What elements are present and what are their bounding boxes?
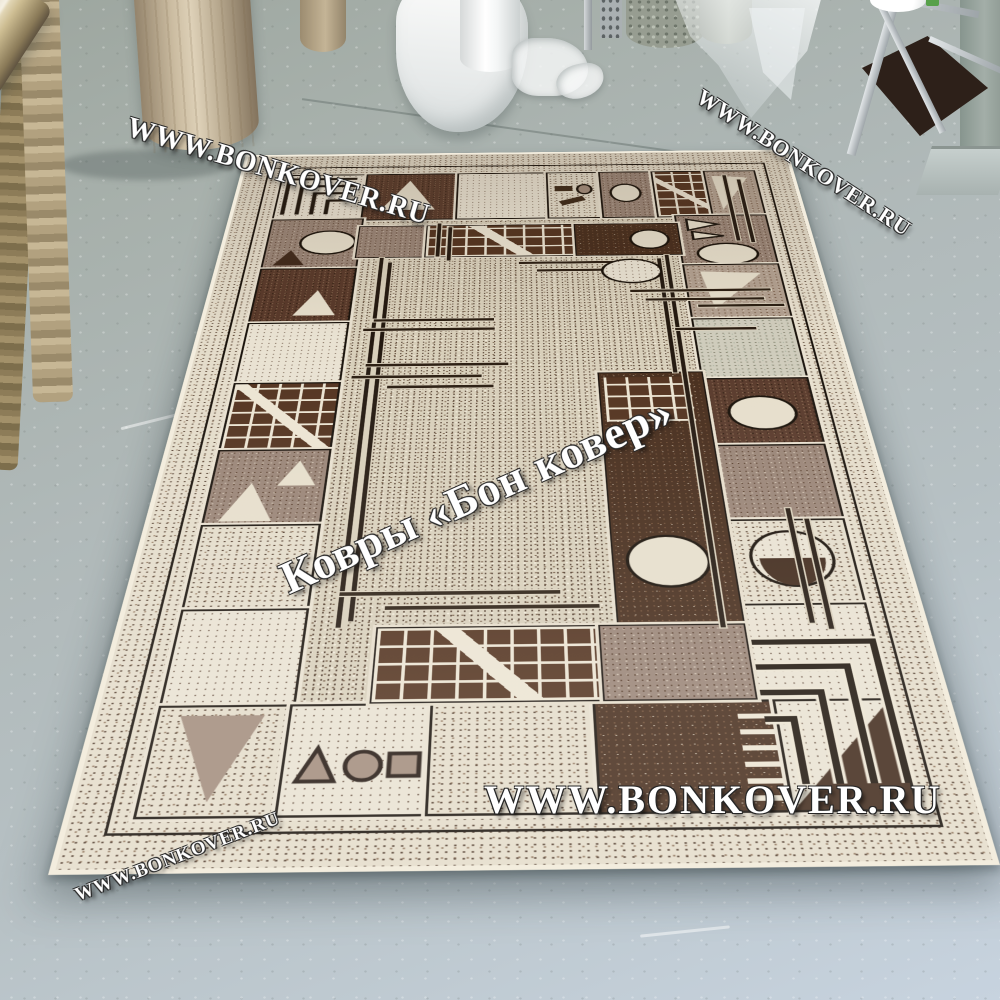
rug-tile-brown [247,268,357,326]
triangle-motif [277,460,319,485]
angle-glyph [559,196,586,206]
ellipse-motif [725,395,802,430]
ellipse-motif [628,229,671,249]
watermark-bottom: WWW.BONKOVER.RU [484,776,941,823]
rug-tile-triangles [200,449,331,528]
rug-tile-plain [233,322,349,386]
shapes-motif [280,734,426,796]
triangle-motif [218,483,278,522]
rug-tile-plain [158,608,309,710]
rug-tile-corner-triangle [133,704,296,819]
top-strip-chocolate [574,223,683,256]
top-strip-mauve [355,226,429,259]
bar-glyph [554,186,572,191]
metal-pole [584,0,592,50]
ellipse-motif [695,242,762,265]
triangle-motif [162,715,265,803]
triangle-motif [292,290,339,316]
rug-tile-chevrons [674,214,779,266]
ellipse-motif [623,534,714,587]
bottom-strip-brick-grid [369,625,606,704]
greek-key-motif [739,617,931,796]
rug-tile-plain [712,444,845,523]
triangle-motif [272,250,306,265]
bottom-strip-mauve [598,623,758,701]
metal-rack-trolley [806,0,1000,192]
rug-tile-outline-shapes [274,703,436,818]
rug-tile-ellipse [260,219,364,271]
rug-tile-brick-grid [218,382,341,453]
circle-glyph [576,184,593,194]
diagonal-line [220,383,339,451]
ellipse-motif [608,183,643,202]
white-film-roll [460,0,520,72]
rug-tile-plain [455,172,551,219]
rug-tile-glyphs [546,172,606,219]
perforated-upright [600,0,622,38]
small-carpet-roll [340,0,396,56]
ellipse-motif [297,230,359,255]
diagonal-line [371,626,605,702]
photo-stage: WWW.BONKOVER.RU WWW.BONKOVER.RU Ковры «Б… [0,0,1000,1000]
rug-tile-ellipse [701,377,826,448]
green-tape [926,0,939,6]
